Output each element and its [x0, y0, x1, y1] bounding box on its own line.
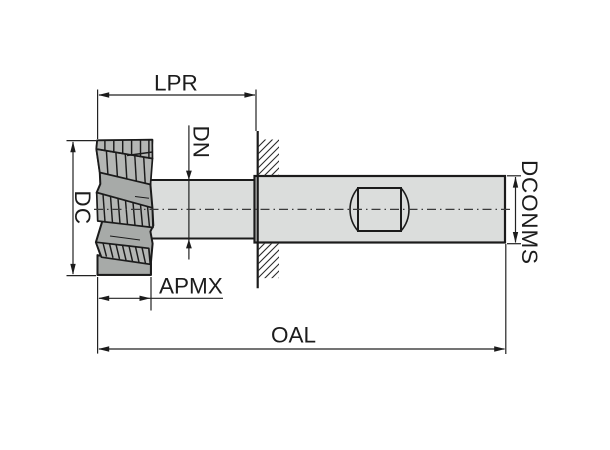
- svg-text:DC: DC: [70, 190, 95, 225]
- svg-text:APMX: APMX: [159, 274, 223, 299]
- svg-text:LPR: LPR: [154, 71, 198, 96]
- svg-text:OAL: OAL: [271, 323, 316, 348]
- svg-text:DN: DN: [189, 126, 214, 159]
- svg-text:DCONMS: DCONMS: [517, 160, 542, 265]
